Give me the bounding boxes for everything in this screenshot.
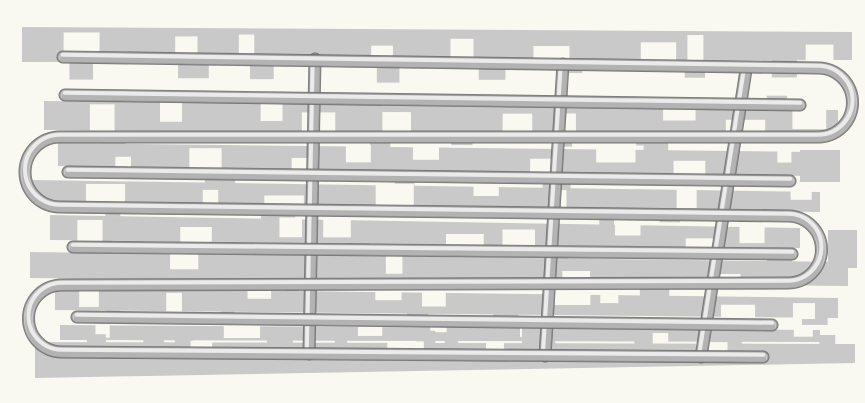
slab-patch — [828, 230, 857, 268]
render-viewport[interactable] — [0, 0, 865, 403]
pipe-layout-render — [0, 0, 865, 403]
slab-patch — [800, 150, 840, 182]
